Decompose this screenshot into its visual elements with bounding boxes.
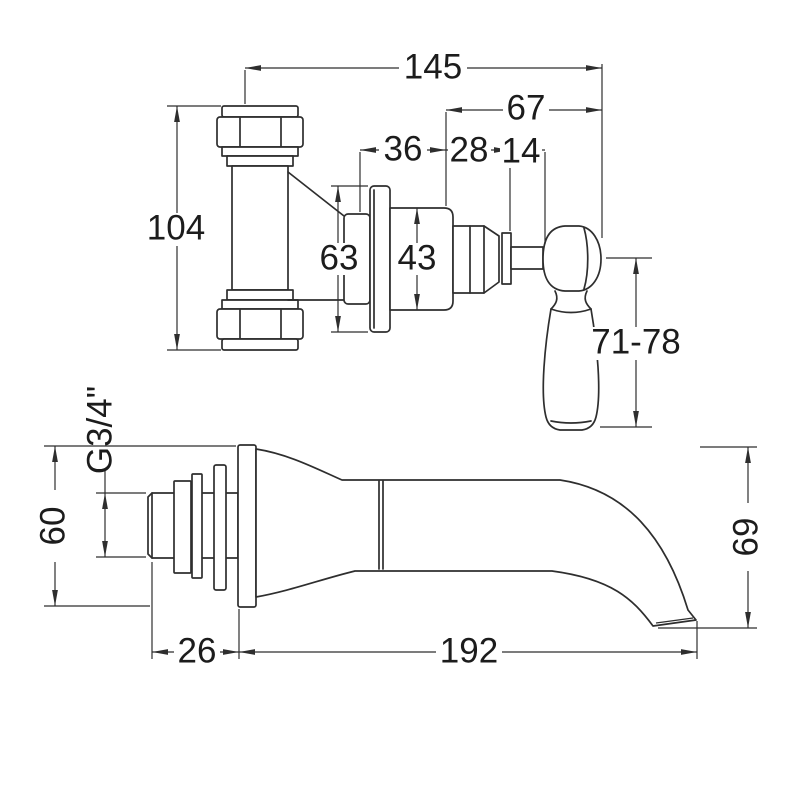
- dimension-192: 192: [239, 621, 697, 670]
- fixing-flange-plate: [214, 465, 226, 590]
- pipe-top-washer: [222, 147, 298, 156]
- dim-label-71-78: 71-78: [591, 322, 681, 361]
- technical-drawing-page: 145 67 36 28 14 104: [0, 0, 800, 800]
- dimension-104: 104: [143, 106, 221, 350]
- spout-side-view: [148, 445, 696, 626]
- pipe-body: [232, 166, 288, 290]
- body-transition-top-line: [288, 172, 344, 216]
- pipe-bottom-compression-nut: [217, 309, 303, 339]
- handle-neck-lines: [551, 291, 591, 309]
- bonnet-hex-nut: [453, 226, 499, 293]
- stem-ring: [502, 233, 511, 284]
- dimension-g34-thread: G3/4": [80, 386, 146, 557]
- dimension-71-78: 71-78: [588, 258, 684, 427]
- dim-label-g34: G3/4": [80, 386, 119, 474]
- pipe-top-compression-nut: [217, 117, 303, 147]
- spout-body-group: [256, 449, 696, 626]
- dim-label-14: 14: [502, 131, 541, 170]
- dim-label-60: 60: [33, 507, 72, 546]
- spout-body: [256, 449, 696, 626]
- dim-label-145: 145: [404, 47, 462, 86]
- tap-dimension-diagram: 145 67 36 28 14 104: [0, 0, 800, 800]
- dim-label-192: 192: [440, 631, 498, 670]
- rotated-label-69: 69: [726, 503, 765, 571]
- backnut-washer: [192, 474, 202, 578]
- backnut: [174, 481, 191, 573]
- supply-pipe-assembly: [217, 106, 303, 350]
- dim-label-36: 36: [384, 129, 423, 168]
- dim-label-26: 26: [178, 631, 217, 670]
- dim-label-63: 63: [320, 238, 359, 277]
- handle-ball-hub: [543, 226, 601, 291]
- pipe-top-cap: [222, 106, 298, 117]
- pipe-bottom-collar: [227, 290, 293, 300]
- rotated-label-g34: G3/4": [80, 386, 119, 474]
- extension-lines-g34: [96, 470, 146, 557]
- dim-label-43: 43: [398, 238, 437, 277]
- dim-label-69: 69: [726, 518, 765, 557]
- dim-label-67: 67: [507, 88, 546, 127]
- spout-wall-flange: [238, 445, 256, 607]
- handle-stem: [511, 247, 543, 269]
- rotated-label-60: 60: [33, 490, 72, 562]
- dim-label-104: 104: [147, 208, 205, 247]
- pipe-bottom-cap: [222, 339, 298, 350]
- pipe-bottom-washer: [222, 300, 298, 309]
- spout-wall-fixing: [148, 445, 256, 607]
- pipe-top-collar: [227, 156, 293, 166]
- dim-label-28: 28: [450, 130, 489, 169]
- wall-flange-plate: [370, 186, 390, 332]
